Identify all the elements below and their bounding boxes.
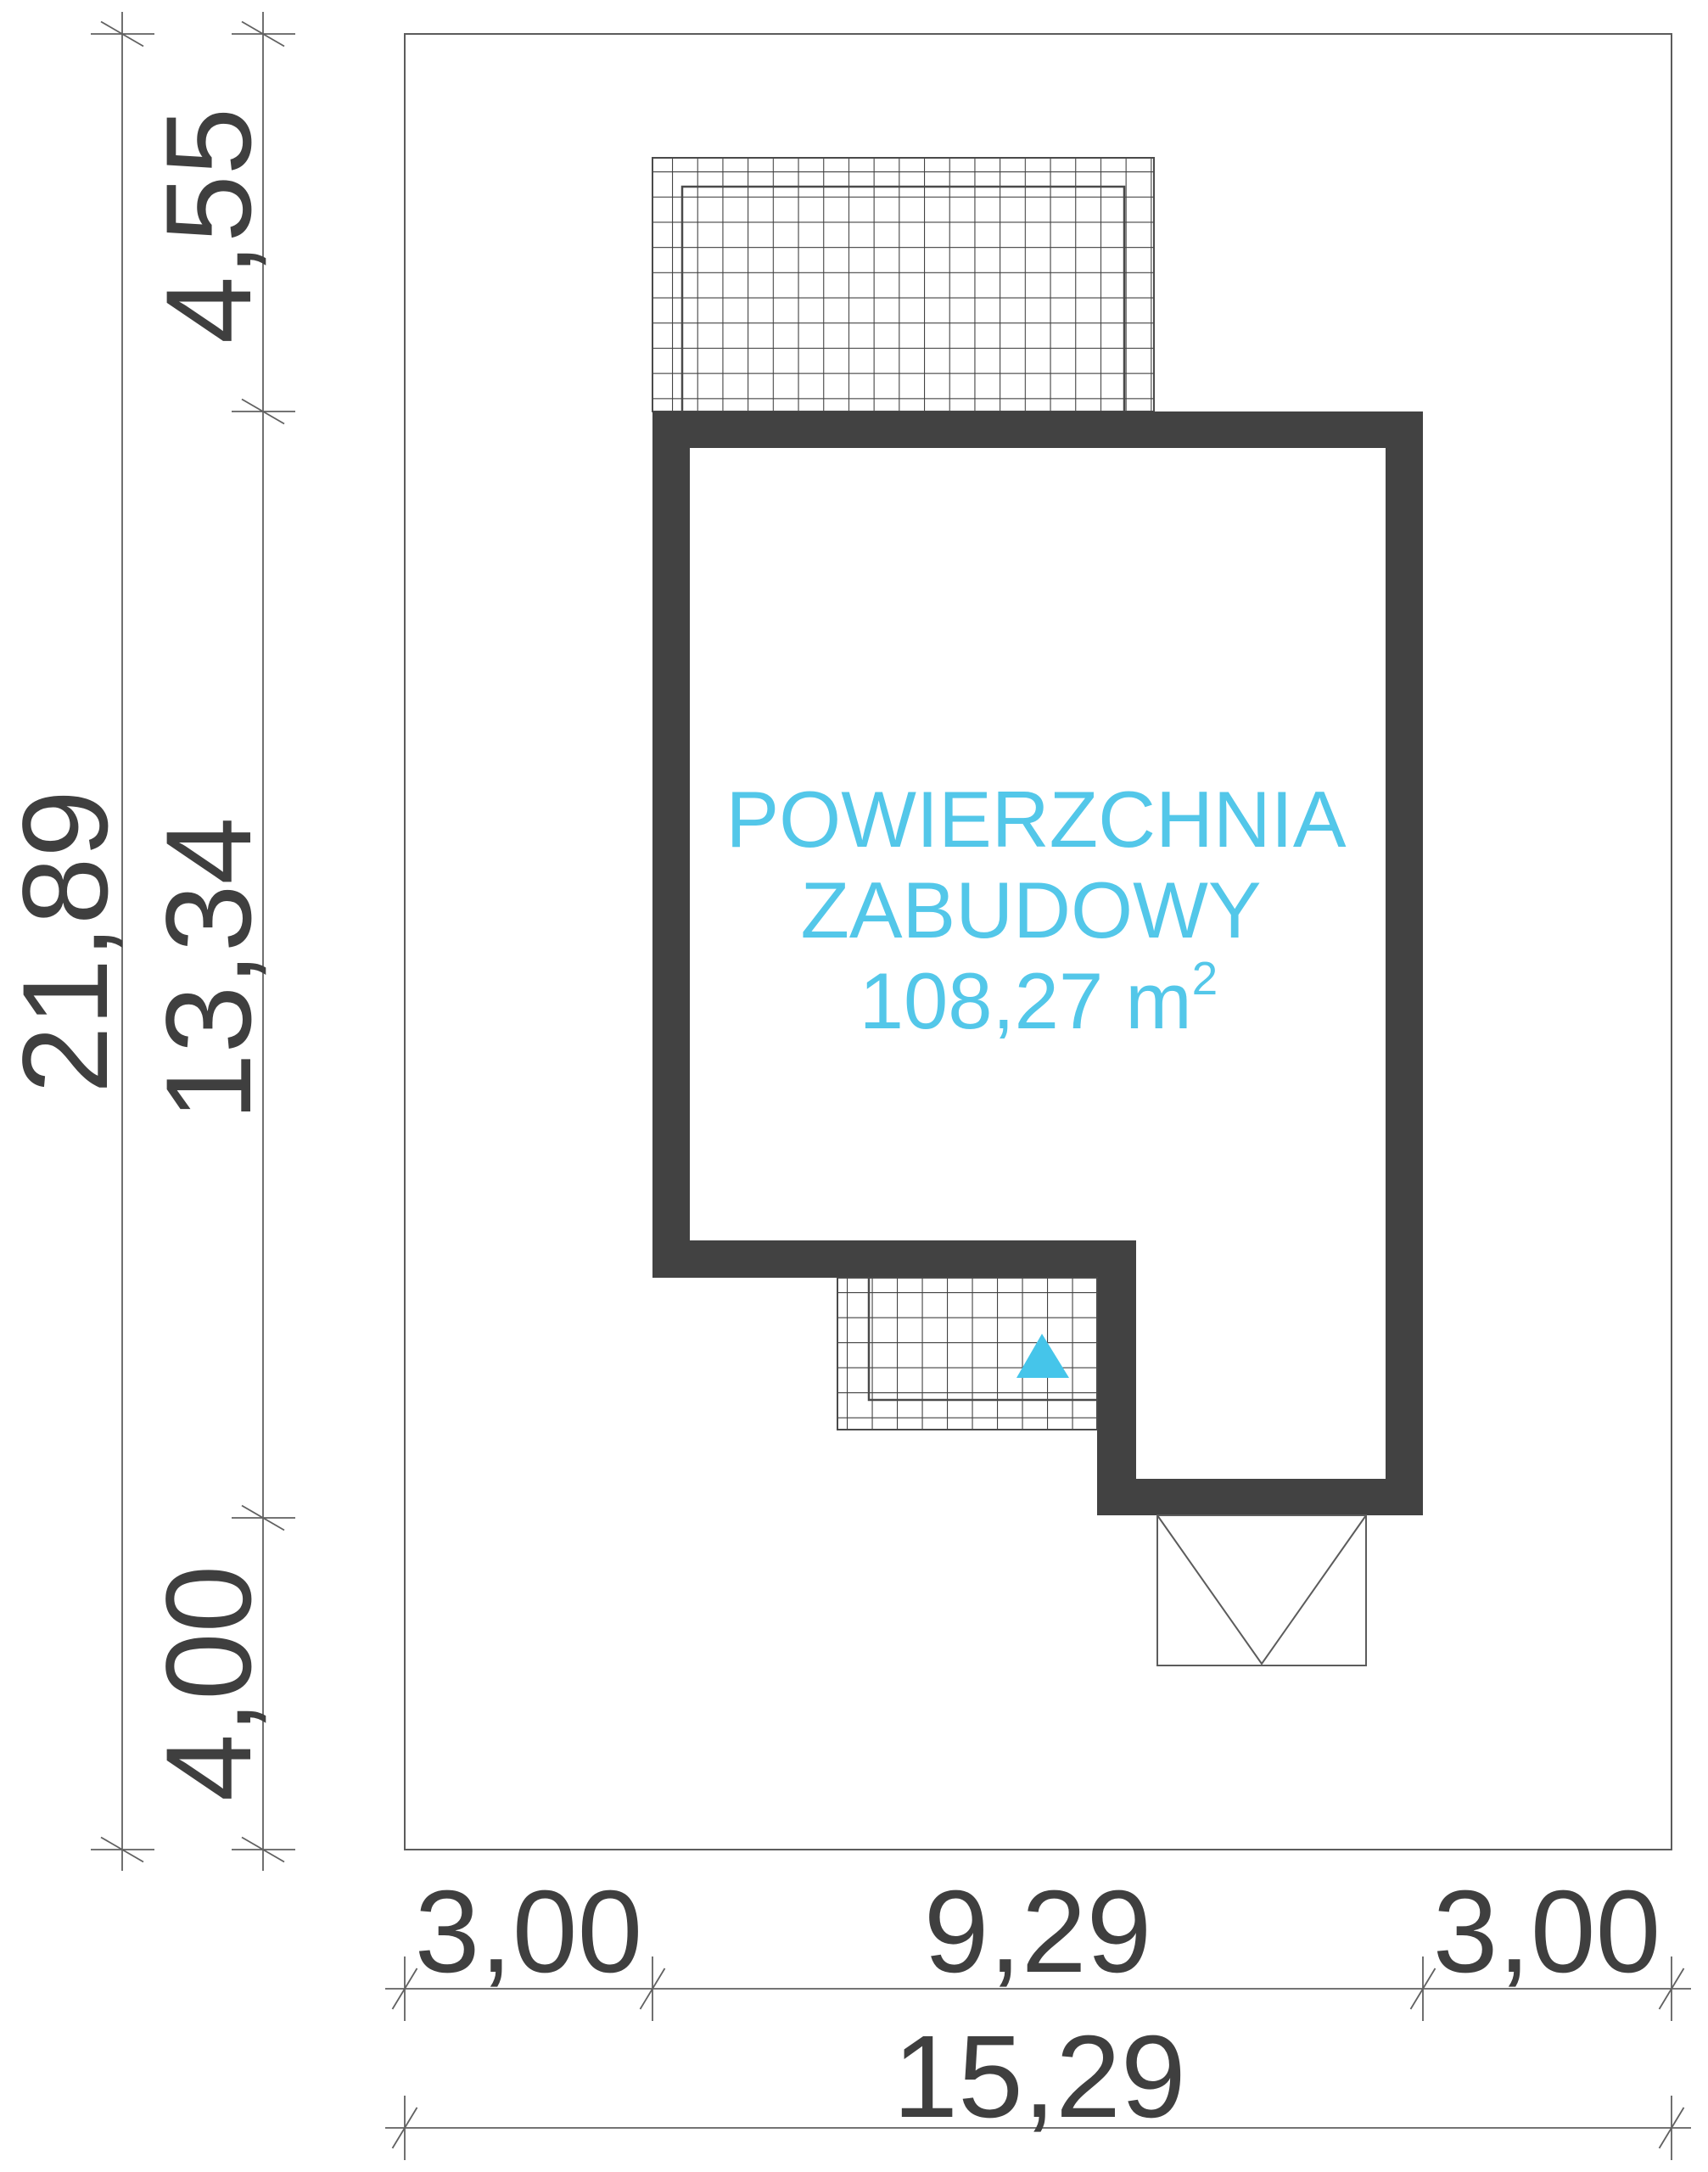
svg-text:ZABUDOWY: ZABUDOWY (800, 865, 1261, 954)
svg-text:15,29: 15,29 (893, 2012, 1185, 2142)
svg-text:21,89: 21,89 (0, 790, 133, 1094)
svg-text:POWIERZCHNIA: POWIERZCHNIA (725, 775, 1346, 864)
svg-text:13,34: 13,34 (142, 817, 277, 1121)
svg-text:4,55: 4,55 (142, 108, 277, 344)
svg-text:9,29: 9,29 (924, 1867, 1152, 1997)
svg-text:3,00: 3,00 (1433, 1867, 1661, 1997)
svg-text:3,00: 3,00 (415, 1867, 643, 1997)
svg-text:108,27 m2: 108,27 m2 (860, 952, 1218, 1045)
svg-text:4,00: 4,00 (142, 1565, 277, 1801)
